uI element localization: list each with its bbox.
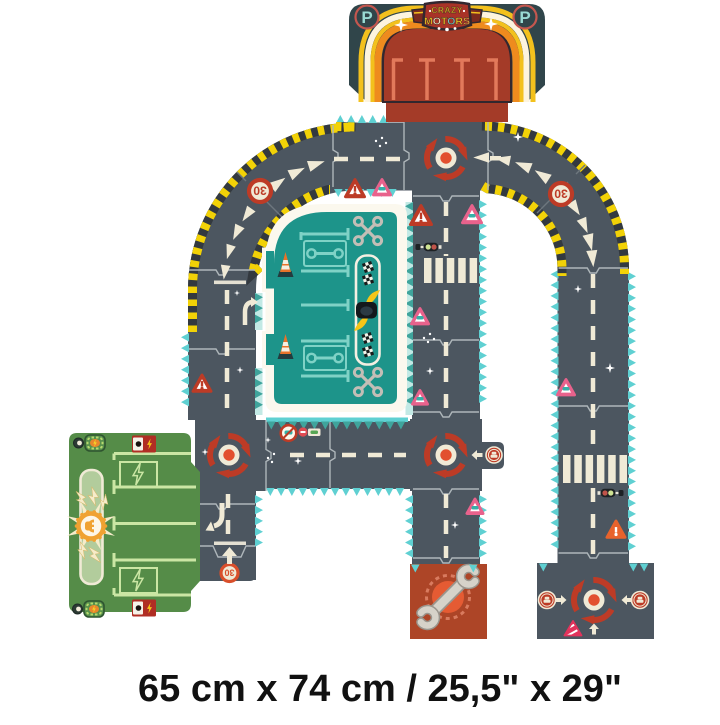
svg-text:65 cm x 74 cm / 25,5" x 29": 65 cm x 74 cm / 25,5" x 29" [138,668,622,710]
svg-text:CRAZY: CRAZY [431,5,462,15]
svg-text:30: 30 [253,183,267,197]
svg-text:30: 30 [554,186,568,200]
svg-text:P: P [519,8,530,27]
svg-text:30: 30 [224,567,234,577]
svg-text:MOTORS: MOTORS [424,16,470,28]
svg-text:P: P [361,8,372,27]
